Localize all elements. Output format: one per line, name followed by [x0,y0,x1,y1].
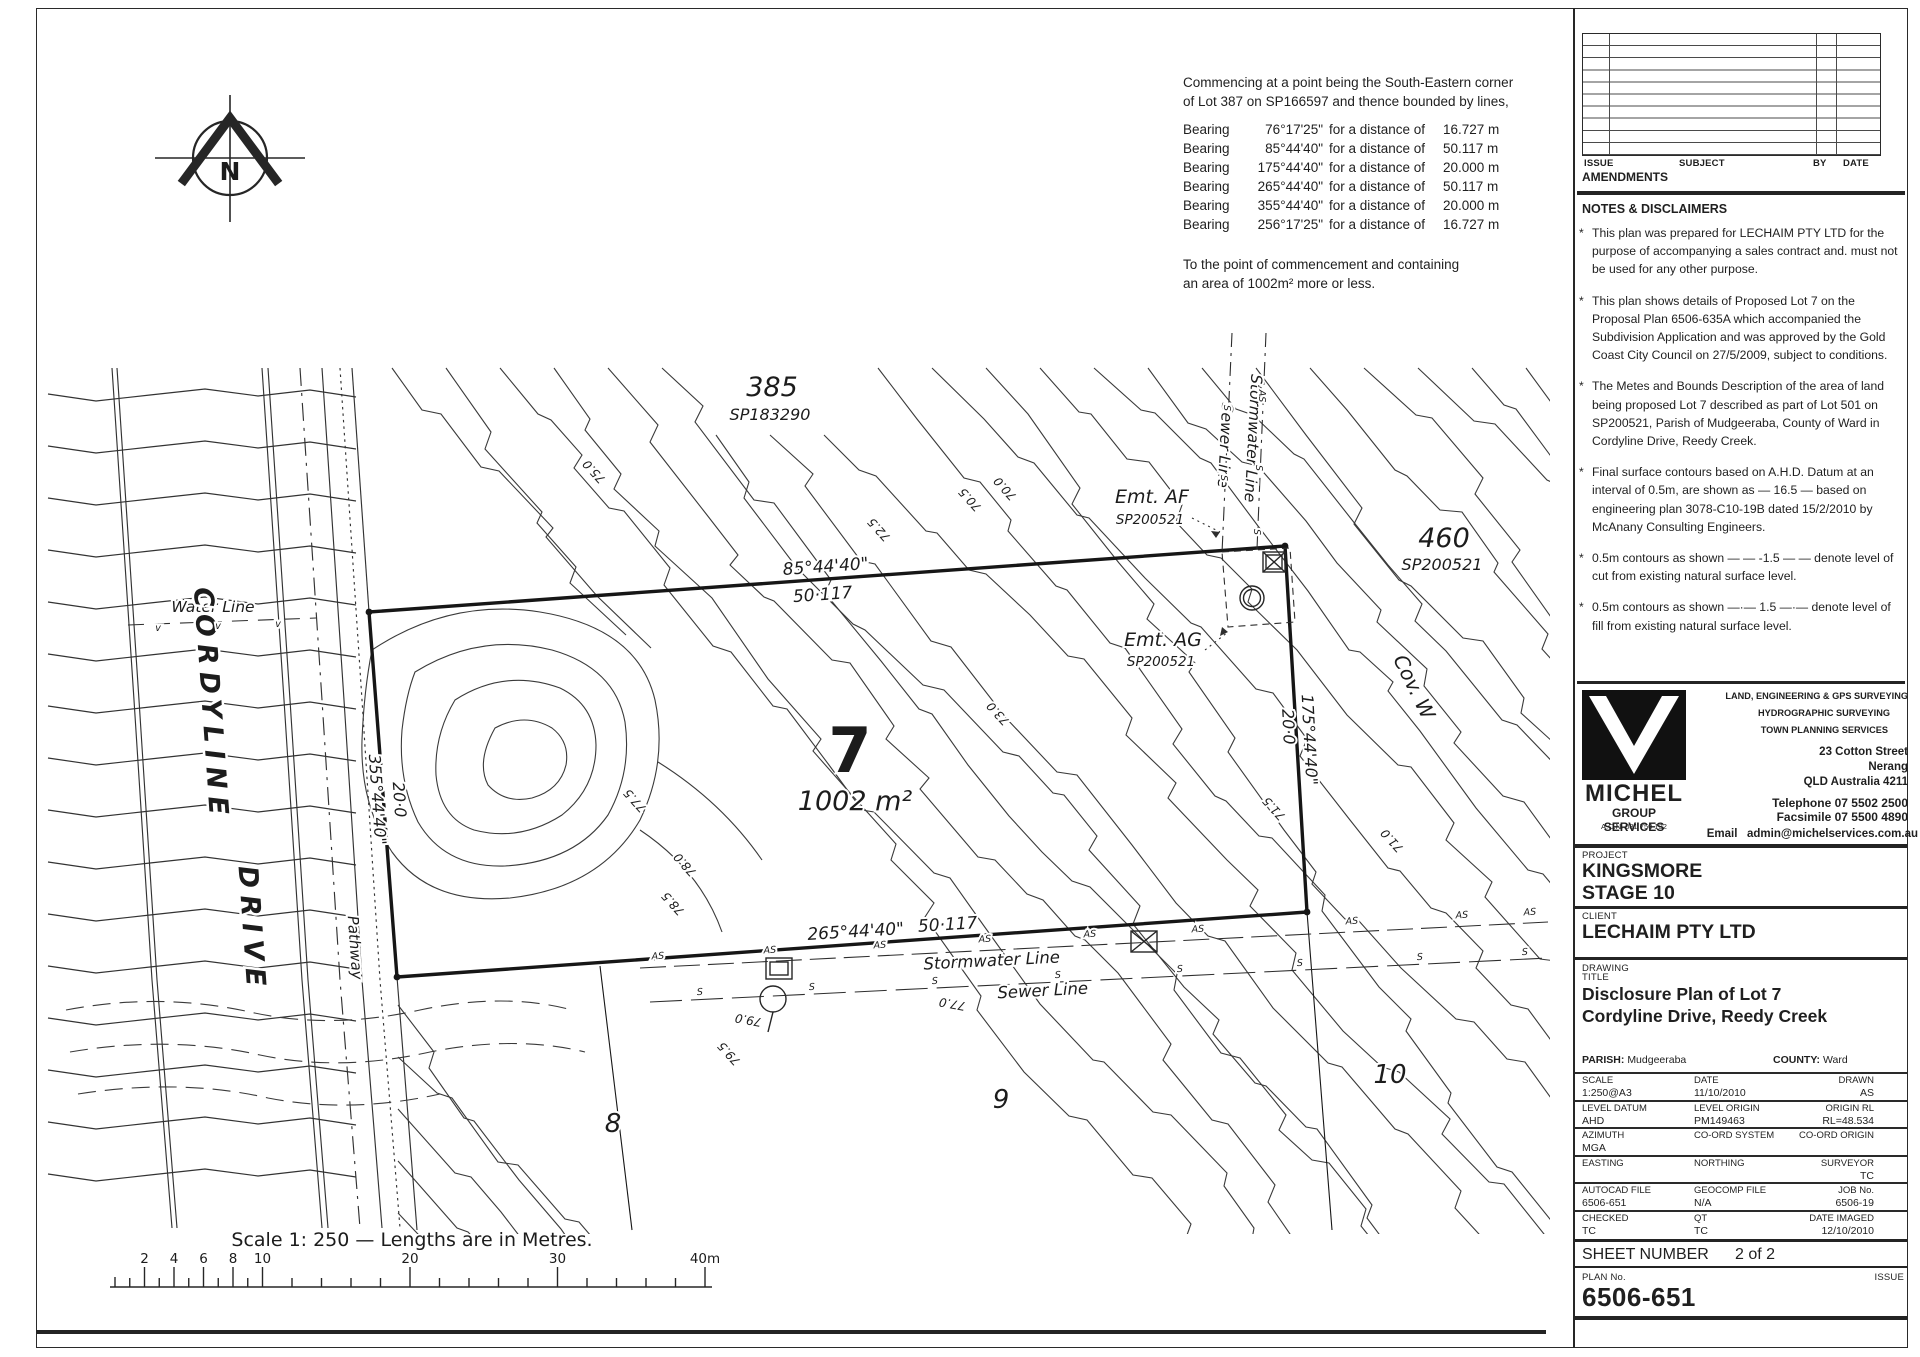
info-cell-value: N/A [1694,1197,1797,1209]
firm-name: MICHEL [1582,780,1686,808]
line-type-mark: AS [977,934,991,946]
project-name-2: STAGE 10 [1582,882,1675,905]
info-cell-label: SCALE [1582,1075,1687,1086]
info-cell: QTTC [1687,1210,1797,1238]
line-type-mark: S [697,987,704,998]
metes-line2: of Lot 387 on SP166597 and thence bounde… [1183,93,1517,112]
info-cell-value: 11/10/2010 [1694,1087,1797,1099]
metes-close2: an area of 1002m² more or less. [1183,275,1517,294]
lot7-area: 1002 m² [798,786,913,817]
contour-label: 73.0 [984,699,1013,728]
firm-addr3: QLD Australia 4211 [1804,776,1908,788]
scale-title: Scale 1: 250 — Lengths are in Metres. [231,1229,592,1251]
line-type-mark: AS [1082,929,1096,941]
line-type-mark: S [932,976,939,987]
contour-line [1148,368,1575,887]
info-cell: AZIMUTHMGA [1575,1127,1687,1155]
easement-af-label: Emt. AF [1115,486,1190,508]
note-item: *0.5m contours as shown —·— 1.5 —·— deno… [1579,598,1904,634]
parish-value: Mudgeeraba [1627,1054,1686,1066]
info-cell-value: 6506-651 [1582,1197,1687,1209]
info-cell: EASTING [1575,1155,1687,1183]
info-cell: ORIGIN RLRL=48.534 [1797,1100,1907,1128]
line-type-mark: AS [1454,910,1468,922]
info-cell-label: SURVEYOR [1797,1158,1874,1169]
info-cell-label: ORIGIN RL [1797,1103,1874,1114]
line-type-mark: AS [1522,907,1536,919]
line-type-mark: S [1251,529,1262,535]
line-type-mark: AS [1344,916,1358,928]
firm-service3: TOWN PLANNING SERVICES [1761,725,1888,735]
info-cell-value: TC [1797,1170,1874,1182]
line-type-mark: S [1253,465,1264,471]
sheet-number-value: 2 of 2 [1735,1246,1775,1264]
info-cell-label: EASTING [1582,1158,1687,1169]
contour-line [878,368,1562,1249]
scale-tick-label: 4 [170,1251,179,1267]
street-name-drive: DRIVE [232,865,272,994]
road-contour [48,493,356,505]
contour-line [1364,368,1563,649]
line-type-mark: v [215,621,221,632]
info-cell: AUTOCAD FILE6506-651 [1575,1182,1687,1210]
contour-label: 79.5 [715,1039,743,1068]
scale-tick-label: 10 [254,1251,271,1267]
road-contour [48,1013,356,1025]
lot385-sp-label: SP183290 [730,405,811,424]
info-cell-value: 6506-19 [1797,1197,1874,1209]
lot460-label: 460 [1418,523,1470,554]
info-cell-label: QT [1694,1213,1797,1224]
frontage-line [397,977,417,1230]
scale-tick-label: 30 [549,1251,566,1267]
bearing-left: 355°44'40" [365,754,390,846]
county-label: COUNTY: [1773,1054,1820,1066]
scale-tick-label: 8 [229,1251,238,1267]
road-contour [48,857,356,869]
drawing-title-2: Cordyline Drive, Reedy Creek [1582,1006,1827,1027]
info-cell-label: JOB No. [1797,1185,1874,1196]
line-type-mark: AS [762,945,776,957]
scale-bar: 246810203040m [110,1251,720,1287]
north-n-label: N [220,157,241,186]
sheet-number-label: SHEET NUMBER [1582,1246,1709,1264]
drawing-info-table: SCALE1:250@A3DATE11/10/2010DRAWNASLEVEL … [1575,1072,1907,1238]
amendments-grid [1582,33,1881,156]
info-cell-label: GEOCOMP FILE [1694,1185,1797,1196]
client-name: LECHAIM PTY LTD [1582,921,1756,944]
road-edge-line [112,368,172,1228]
line-type-mark: S [809,982,816,993]
county-line: COUNTY: Ward [1773,1054,1848,1066]
contour-label: 71.0 [1378,826,1407,855]
metes-and-bounds-text: Commencing at a point being the South-Ea… [1183,74,1517,293]
contour-label: 75.0 [580,457,609,486]
lot460-sp-label: SP200521 [1402,555,1483,574]
amendments-label: AMENDMENTS [1582,170,1668,184]
line-type-mark: S [1297,958,1304,969]
road-contour [48,961,356,973]
info-cell-label: DATE IMAGED [1797,1213,1874,1224]
info-cell-label: DATE [1694,1075,1797,1086]
contour-label: 78.5 [659,889,687,918]
county-value: Ward [1823,1054,1848,1066]
line-type-mark: AS [1256,389,1267,403]
depression-contours [362,609,762,932]
road-contour [48,1117,356,1129]
metes-bearing-table: Bearing76°17'25"for a distance of16.727 … [1183,120,1517,234]
contour-label: 78.0 [671,850,700,879]
info-cell-label: AUTOCAD FILE [1582,1185,1687,1196]
distance-left: 20·0 [389,781,410,818]
line-type-marks: ASASASASASASASASASSSSSSSSSSSASSSvvv [155,389,1536,998]
info-cell-label: CO-ORD SYSTEM [1694,1130,1797,1141]
line-type-mark: S [1055,970,1062,981]
firm-addr2: Nerang [1868,761,1908,773]
info-cell-value: AS [1797,1087,1874,1099]
road-contour [48,389,356,401]
sewer-bottom-label: Sewer Line [997,979,1089,1003]
title-label: TITLE [1582,972,1609,983]
contour-line [986,368,1575,1149]
amend-header-issue: ISSUE [1584,158,1614,169]
road-contour [48,545,356,557]
line-type-mark: v [155,623,161,634]
info-cell: NORTHING [1687,1155,1797,1183]
info-cell-value: TC [1582,1225,1687,1237]
issue-label: ISSUE [1874,1272,1904,1283]
amend-header-subject: SUBJECT [1679,158,1725,169]
info-cell: LEVEL DATUMAHD [1575,1100,1687,1128]
info-cell: DRAWNAS [1797,1072,1907,1100]
firm-email: admin@michelservices.com.au [1747,828,1918,840]
info-cell-label: AZIMUTH [1582,1130,1687,1141]
note-item: *Final surface contours based on A.H.D. … [1579,463,1904,536]
info-cell: DATE11/10/2010 [1687,1072,1797,1100]
info-cell-label: LEVEL DATUM [1582,1103,1687,1114]
line-type-mark: AS [650,951,664,963]
info-cell-label: DRAWN [1797,1075,1874,1086]
amend-header-by: BY [1813,158,1827,169]
contour-line [662,368,1393,1282]
info-cell-value: 1:250@A3 [1582,1087,1687,1099]
info-cell: LEVEL ORIGINPM149463 [1687,1100,1797,1128]
firm-acn: A.C.N. 081 750 132 [1582,822,1686,831]
project-name-1: KINGSMORE [1582,860,1702,883]
covenant-label: Cov. W [1388,651,1440,725]
road-contour [48,909,356,921]
info-cell-label: CO-ORD ORIGIN [1797,1130,1874,1141]
note-item: *The Metes and Bounds Description of the… [1579,377,1904,450]
lot10-number: 10 [1373,1060,1406,1090]
contour-label: 71.5 [1260,794,1288,823]
info-cell: SURVEYORTC [1797,1155,1907,1183]
info-cell-value: MGA [1582,1142,1687,1154]
firm-service2: HYDROGRAPHIC SURVEYING [1758,708,1890,718]
line-type-mark: S [1522,947,1529,958]
firm-email-line: Email admin@michelservices.com.au [1707,828,1918,840]
easement-ag-label: Emt. AG [1124,629,1202,651]
metes-line1: Commencing at a point being the South-Ea… [1183,74,1517,93]
distance-bottom: 50·117 [917,913,978,937]
contour-line [398,1005,622,1297]
firm-phone: Telephone 07 5502 2500 [1772,796,1908,810]
leader-arrowheads [1211,531,1228,636]
plan-number: 6506-651 [1582,1282,1696,1313]
road-contour [48,1169,356,1181]
line-type-mark: S [1218,475,1229,481]
firm-email-label: Email [1707,828,1738,840]
drawing-title-1: Disclosure Plan of Lot 7 [1582,984,1781,1005]
contour-label: 70.0 [991,474,1020,503]
notes-list: *This plan was prepared for LECHAIM PTY … [1579,224,1904,648]
title-block-column: ISSUE SUBJECT BY DATE AMENDMENTS NOTES &… [1573,8,1920,1348]
lot385-label: 385 [746,372,798,403]
road-edge-line [268,368,328,1228]
amend-header-date: DATE [1843,158,1869,169]
scale-tick-label: 40m [690,1251,720,1267]
scale-tick-label: 2 [140,1251,149,1267]
parish-line: PARISH: Mudgeeraba [1582,1054,1686,1066]
line-type-mark: S [1417,952,1424,963]
line-type-mark: AS [872,940,886,952]
info-cell-label: CHECKED [1582,1213,1687,1224]
bearing-right: 175°44'40" [1298,694,1322,786]
road-contour [48,805,356,817]
contour-line [1472,368,1575,481]
distance-top: 50·117 [792,583,853,607]
road-contour [48,441,356,453]
note-item: *This plan was prepared for LECHAIM PTY … [1579,224,1904,279]
lot8-number: 8 [605,1109,622,1139]
survey-plan-sheet: { "colors":{"ink":"#1f1f1f","paper":"#ff… [0,0,1920,1357]
line-type-mark: S [1221,405,1232,411]
lot7-number: 7 [828,714,871,787]
line-type-mark: v [275,619,281,630]
easement-af-sp: SP200521 [1116,512,1184,528]
info-cell-value: AHD [1582,1115,1687,1127]
line-type-mark: S [1177,964,1184,975]
contour-label: 79.0 [734,1011,763,1029]
info-cell-value: PM149463 [1694,1115,1797,1127]
north-arrow: N [155,95,305,222]
easement-ag-sp: SP200521 [1127,654,1195,670]
contour-label: 72.5 [865,515,893,544]
lot9-number: 9 [993,1085,1010,1115]
info-cell: JOB No.6506-19 [1797,1182,1907,1210]
info-cell-label: NORTHING [1694,1158,1797,1169]
contour-label: 77.0 [938,995,967,1013]
info-cell-value: 12/10/2010 [1797,1225,1874,1237]
parish-label: PARISH: [1582,1054,1624,1066]
info-cell: CO-ORD SYSTEM [1687,1127,1797,1155]
scale-tick-label: 6 [199,1251,208,1267]
distance-right: 20·0 [1278,708,1299,745]
scale-tick-label: 20 [401,1251,418,1267]
info-cell-value: RL=48.534 [1797,1115,1874,1127]
contour-label: 77.5 [621,786,649,815]
note-item: *This plan shows details of Proposed Lot… [1579,292,1904,365]
info-cell: SCALE1:250@A3 [1575,1072,1687,1100]
notes-heading: NOTES & DISCLAIMERS [1582,202,1727,216]
firm-addr1: 23 Cotton Street [1819,746,1908,758]
firm-service1: LAND, ENGINEERING & GPS SURVEYING [1725,691,1908,701]
metes-close1: To the point of commencement and contain… [1183,256,1517,275]
stormwater-bottom-label: Stormwater Line [923,947,1060,973]
michel-logo [1582,690,1686,780]
contour-label: 70.5 [956,485,984,514]
info-cell: CO-ORD ORIGIN [1797,1127,1907,1155]
note-item: *0.5m contours as shown — — -1.5 — — den… [1579,549,1904,585]
info-cell: CHECKEDTC [1575,1210,1687,1238]
line-type-mark: AS [1190,924,1204,936]
contour-line [1526,368,1575,462]
firm-fax: Facsimile 07 5500 4890 [1777,810,1908,824]
info-cell: DATE IMAGED12/10/2010 [1797,1210,1907,1238]
info-cell-label: LEVEL ORIGIN [1694,1103,1797,1114]
info-cell: GEOCOMP FILEN/A [1687,1182,1797,1210]
frontage-line [352,368,369,612]
info-cell-value: TC [1694,1225,1797,1237]
contour-line [1040,368,1556,961]
pathway-label: Pathway [344,915,366,981]
